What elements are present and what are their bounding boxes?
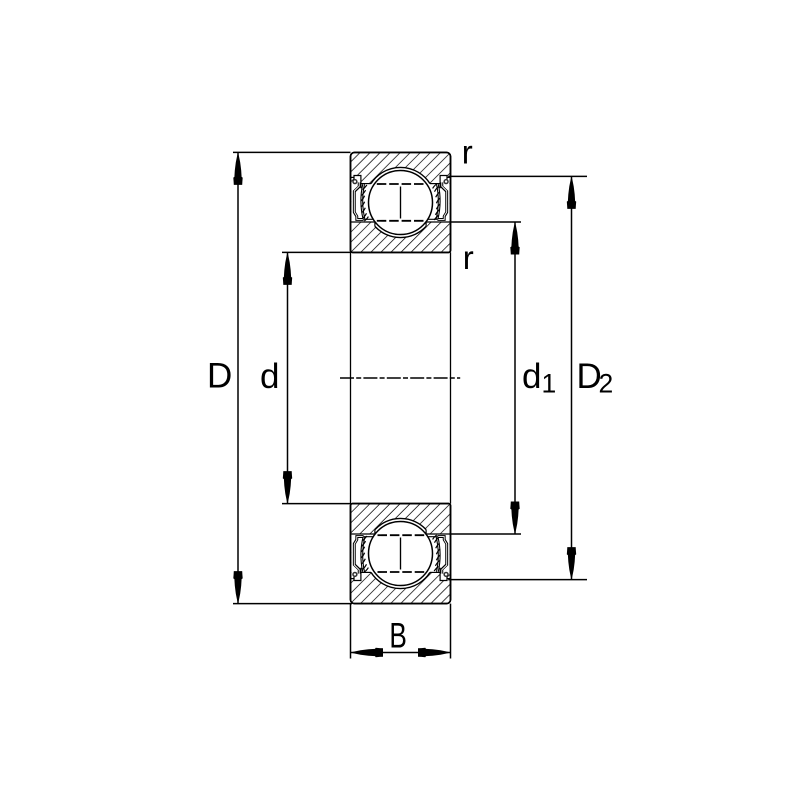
svg-text:r: r [463,239,474,276]
svg-text:d: d [522,357,541,396]
svg-text:1: 1 [542,369,557,399]
svg-text:D: D [207,357,232,396]
svg-text:d: d [260,357,279,396]
svg-text:r: r [462,133,473,170]
svg-text:2: 2 [599,369,614,399]
svg-text:B: B [389,617,407,656]
